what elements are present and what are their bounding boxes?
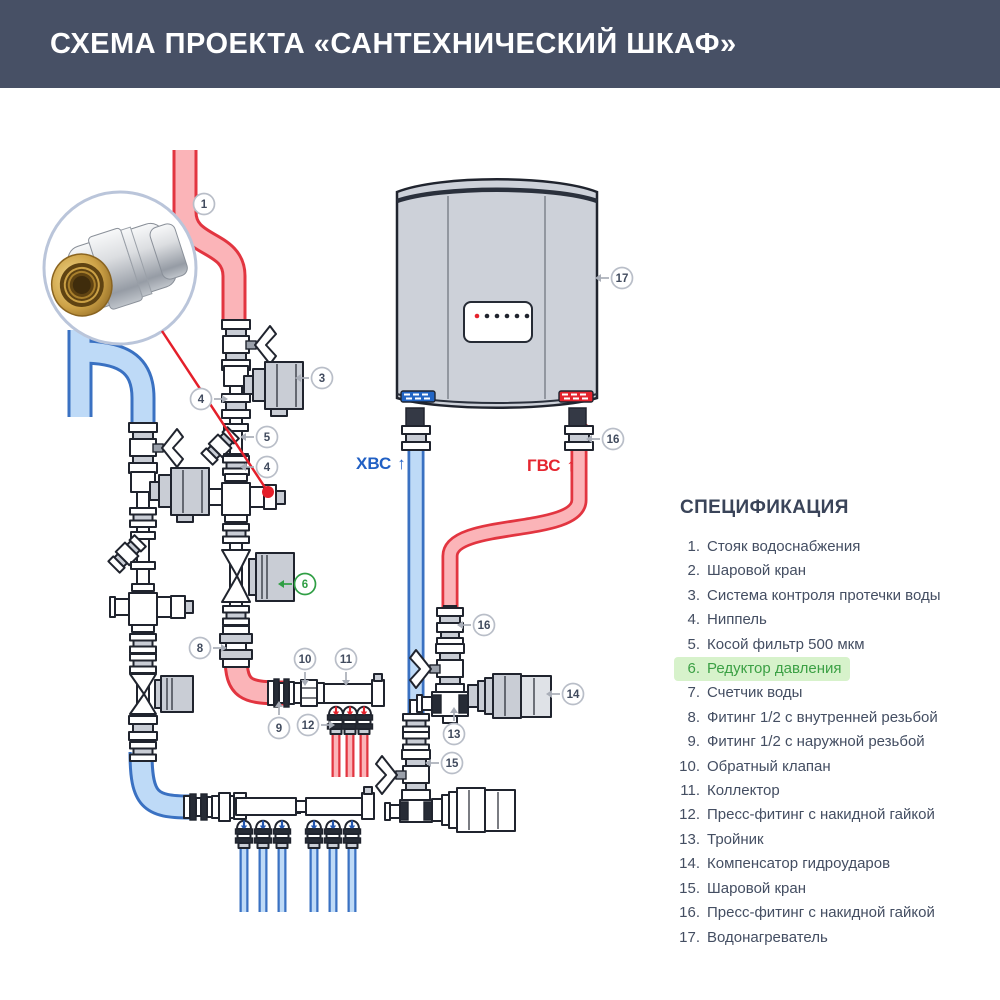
specification-heading: СПЕЦИФИКАЦИЯ: [680, 497, 974, 519]
hot-label-text: ГВС: [527, 456, 561, 476]
spec-item-number: 17.: [674, 926, 700, 950]
callout-11: 11: [336, 649, 357, 687]
spec-item: 7.Счетчик воды: [674, 681, 810, 705]
spec-item-text: Компенсатор гидроударов: [707, 852, 890, 876]
svg-text:17: 17: [616, 273, 629, 285]
spec-item: 14.Компенсатор гидроударов: [674, 852, 898, 876]
spec-item-text: Пресс-фитинг с накидной гайкой: [707, 803, 935, 827]
spec-item-text: Фитинг 1/2 с наружной резьбой: [707, 730, 925, 754]
spec-item: 17.Водонагреватель: [674, 926, 836, 950]
heater-control-panel: [464, 302, 532, 342]
water-hammer-arrester: [432, 788, 515, 832]
svg-text:9: 9: [276, 723, 282, 735]
press-fitting: [268, 679, 294, 707]
spec-item: 12.Пресс-фитинг с накидной гайкой: [674, 803, 943, 827]
hot-column-fittings: [200, 320, 303, 667]
spec-item-text: Фитинг 1/2 с внутренней резьбой: [707, 706, 938, 730]
spec-item: 13.Тройник: [674, 828, 772, 852]
svg-text:13: 13: [448, 729, 461, 741]
water-heater: [397, 179, 597, 426]
spec-item-number: 11.: [674, 779, 700, 803]
spec-item-number: 10.: [674, 755, 700, 779]
spec-item-text: Пресс-фитинг с накидной гайкой: [707, 901, 935, 925]
spec-item-number: 2.: [674, 559, 700, 583]
spec-item-text: Система контроля протечки воды: [707, 584, 941, 608]
svg-text:3: 3: [319, 373, 325, 385]
collector-bar: [324, 684, 374, 703]
spec-item-number: 8.: [674, 706, 700, 730]
svg-text:16: 16: [607, 434, 620, 446]
tee-fitting: [385, 800, 432, 822]
svg-text:1: 1: [201, 199, 208, 211]
callout-4: 4: [191, 389, 229, 410]
svg-text:4: 4: [264, 462, 271, 474]
spec-item: 16.Пресс-фитинг с накидной гайкой: [674, 901, 943, 925]
threaded-fitting: [220, 626, 252, 667]
nipple-fitting: [222, 394, 250, 418]
spec-item: 15.Шаровой кран: [674, 877, 814, 901]
up-arrow-icon: ↑: [567, 456, 576, 476]
spec-item-text: Стояк водоснабжения: [707, 535, 860, 559]
spec-item: 2.Шаровой кран: [674, 559, 814, 583]
water-hammer-arrester: [468, 674, 551, 718]
spec-item: 3.Система контроля протечки воды: [674, 584, 949, 608]
spec-item-text: Водонагреватель: [707, 926, 828, 950]
spec-item-text: Редуктор давления: [707, 657, 842, 681]
spec-item-text: Шаровой кран: [707, 877, 806, 901]
spec-item-number: 15.: [674, 877, 700, 901]
cold-water-label: ХВС ↑: [356, 454, 406, 474]
spec-item-text: Счетчик воды: [707, 681, 802, 705]
leader-dot: [262, 486, 274, 498]
water-meter-cross: [203, 474, 285, 522]
specification-panel: СПЕЦИФИКАЦИЯ 1.Стояк водоснабжения2.Шаро…: [674, 497, 974, 950]
callout-1: 1: [194, 194, 215, 215]
spec-item-number: 13.: [674, 828, 700, 852]
press-fitting: [184, 794, 212, 820]
svg-text:5: 5: [264, 432, 271, 444]
svg-text:11: 11: [340, 654, 353, 666]
spec-item: 4.Ниппель: [674, 608, 775, 632]
collector-bar: [306, 798, 366, 815]
svg-text:14: 14: [567, 689, 580, 701]
page: СХЕМА ПРОЕКТА «САНТЕХНИЧЕСКИЙ ШКАФ»: [0, 0, 1000, 1000]
spec-item: 11.Коллектор: [674, 779, 788, 803]
svg-text:10: 10: [299, 654, 312, 666]
spec-item-text: Коллектор: [707, 779, 780, 803]
cold-column-fittings: [107, 423, 209, 761]
check-valve: [294, 680, 324, 706]
leak-control-device: [150, 468, 209, 522]
svg-text:16: 16: [478, 620, 491, 632]
specification-list: 1.Стояк водоснабжения2.Шаровой кран3.Сис…: [674, 535, 974, 950]
spec-item: 9.Фитинг 1/2 с наружной резьбой: [674, 730, 933, 754]
spec-item: 6.Редуктор давления: [674, 657, 850, 681]
cold-collector: [184, 787, 374, 848]
svg-text:4: 4: [198, 394, 205, 406]
spec-item-number: 12.: [674, 803, 700, 827]
spec-item: 8.Фитинг 1/2 с внутренней резьбой: [674, 706, 946, 730]
spec-item-number: 7.: [674, 681, 700, 705]
spec-item-text: Ниппель: [707, 608, 767, 632]
spec-item-number: 5.: [674, 633, 700, 657]
up-arrow-icon: ↑: [397, 454, 406, 474]
callout-17: 17: [595, 268, 633, 289]
spec-item-text: Шаровой кран: [707, 559, 806, 583]
spec-item-text: Косой фильтр 500 мкм: [707, 633, 865, 657]
collector-bar: [236, 798, 296, 815]
svg-text:8: 8: [197, 643, 204, 655]
spec-item-number: 9.: [674, 730, 700, 754]
spec-item: 1.Стояк водоснабжения: [674, 535, 868, 559]
spec-item: 5.Косой фильтр 500 мкм: [674, 633, 873, 657]
heater-hot-port-label: [559, 391, 593, 402]
spec-item-number: 3.: [674, 584, 700, 608]
water-meter-cross: [110, 584, 193, 632]
svg-text:15: 15: [446, 758, 459, 770]
spec-item-text: Тройник: [707, 828, 764, 852]
spec-item: 10.Обратный клапан: [674, 755, 839, 779]
press-fitting: [437, 608, 463, 646]
hot-outlet-pipes: [336, 731, 364, 777]
svg-text:12: 12: [302, 720, 315, 732]
spec-item-number: 6.: [674, 657, 700, 681]
spec-item-text: Обратный клапан: [707, 755, 831, 779]
spec-item-number: 16.: [674, 901, 700, 925]
leak-control-device: [244, 362, 303, 416]
heater-cold-port-label: [401, 391, 435, 402]
press-fitting: [402, 426, 430, 450]
svg-text:6: 6: [302, 579, 308, 591]
cold-outlet-pipes: [244, 848, 352, 912]
spec-item-number: 1.: [674, 535, 700, 559]
spec-item-number: 4.: [674, 608, 700, 632]
cold-label-text: ХВС: [356, 454, 391, 474]
spec-item-number: 14.: [674, 852, 700, 876]
hot-water-label: ГВС ↑: [527, 456, 575, 476]
